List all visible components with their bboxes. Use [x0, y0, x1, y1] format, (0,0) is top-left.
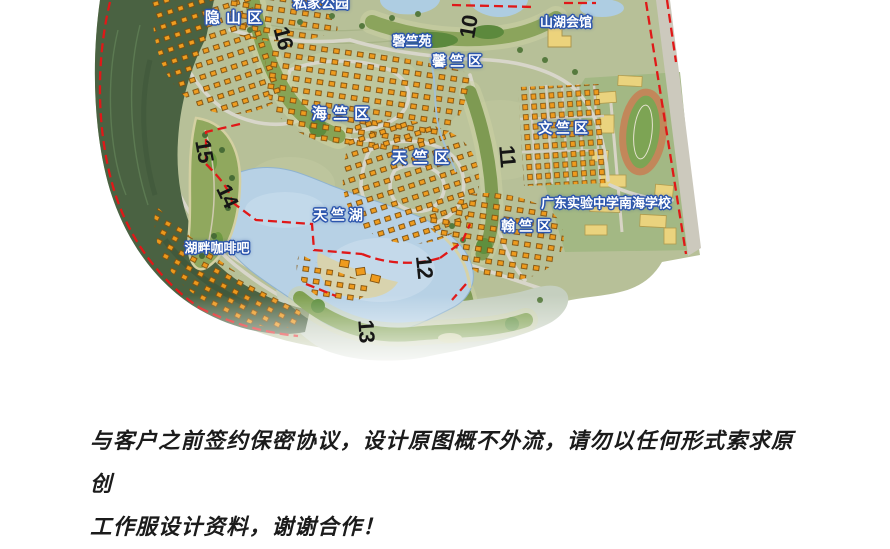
label-private-park: 私家公园: [293, 0, 349, 13]
label-tianzhu-district: 天 竺 区: [392, 147, 450, 168]
label-qingzhu-garden: 磬竺苑: [392, 31, 431, 50]
hole-number-12: 12: [410, 254, 438, 279]
hole-number-15: 15: [189, 138, 219, 165]
label-yinshan-district: 隐 山 区: [205, 7, 263, 28]
hole-number-13: 13: [352, 319, 380, 343]
map-fade: [0, 295, 890, 415]
confidentiality-notice: 与客户之前签约保密协议，设计原图概不外流，请勿以任何形式索求原创 工作服设计资料…: [90, 420, 810, 549]
label-xinzhu-district: 馨 竺 区: [432, 51, 482, 71]
label-shanhu-clubhouse: 山湖会馆: [540, 12, 592, 31]
label-tianzhu-lake: 天 竺 湖: [313, 205, 363, 225]
label-wenzhu-district: 文 竺 区: [538, 118, 588, 138]
label-lakeside-cafe: 湖畔咖啡吧: [184, 238, 249, 257]
hole-number-11: 11: [493, 144, 521, 167]
master-plan-page: 隐 山 区 私家公园 山湖会馆 磬竺苑 馨 竺 区 海 竺 区 天 竺 区 文 …: [0, 0, 890, 540]
label-hanzhu-district: 翰 竺 区: [501, 216, 551, 236]
hole-number-10: 10: [454, 14, 484, 41]
confidentiality-notice-line1: 与客户之前签约保密协议，设计原图概不外流，请勿以任何形式索求原创: [90, 420, 810, 506]
confidentiality-notice-line2: 工作服设计资料，谢谢合作！: [90, 506, 810, 549]
label-haizhu-district: 海 竺 区: [312, 103, 370, 124]
label-school: 广东实验中学南海学校: [541, 193, 671, 212]
